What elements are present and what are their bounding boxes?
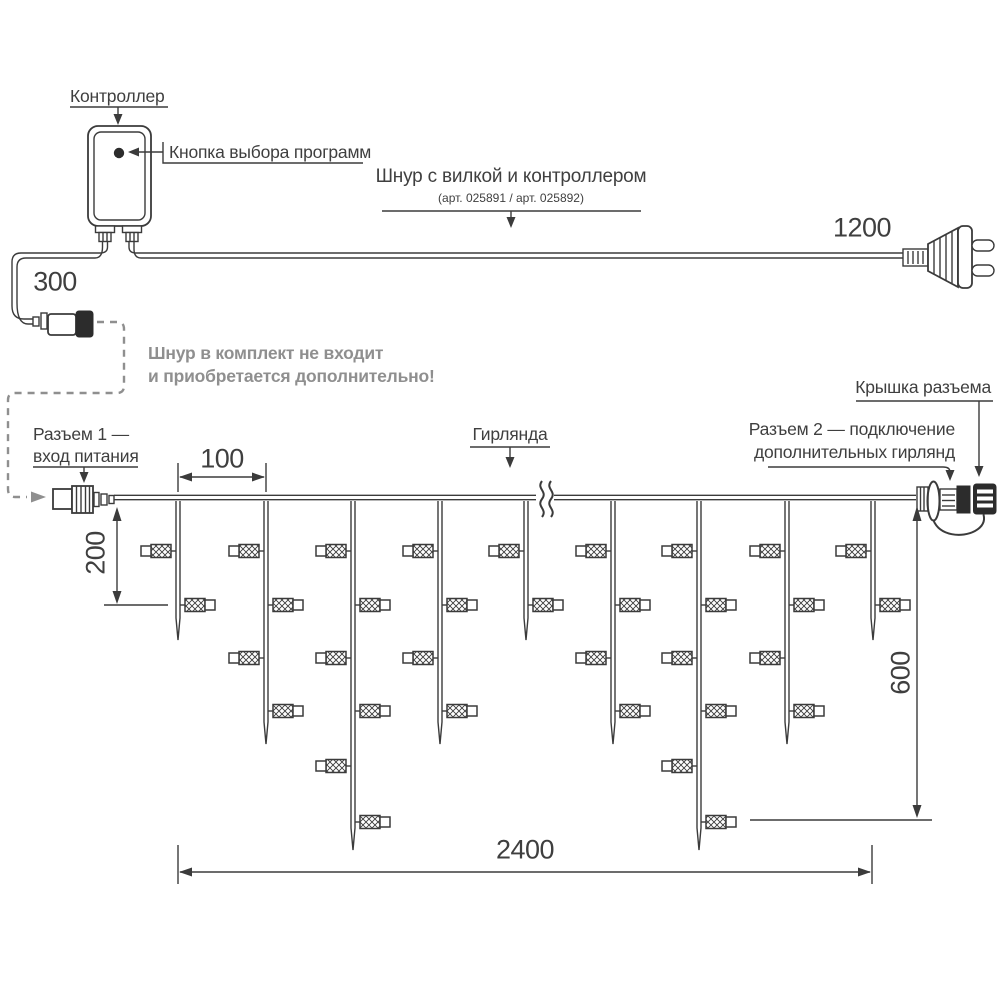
lamp-icon: [403, 545, 438, 558]
wire-break-icon: [536, 480, 554, 517]
controller-box: [88, 126, 151, 242]
leader-controller: [70, 107, 168, 125]
dim-2400-label: 2400: [496, 835, 554, 866]
garland-drops: [141, 501, 910, 850]
lamp-icon: [701, 816, 736, 829]
lamp-icon: [528, 599, 563, 612]
lamp-icon: [316, 652, 351, 665]
controller-outlet-left: [96, 226, 115, 242]
lamp-icon: [141, 545, 176, 558]
power-plug-icon: [903, 226, 994, 288]
lamp-icon: [662, 760, 697, 773]
lamp-icon: [355, 599, 390, 612]
garland-drop: [836, 501, 910, 640]
lamp-icon: [750, 545, 785, 558]
program-button-icon: [114, 148, 124, 158]
not-included-line1: Шнур в комплект не входит: [148, 343, 383, 364]
controller-label: Контроллер: [70, 86, 165, 107]
cap-tether-cable: [934, 515, 985, 535]
lamp-icon: [355, 705, 390, 718]
lamp-icon: [576, 545, 611, 558]
lamp-icon: [489, 545, 524, 558]
cord-connector-icon: [33, 311, 93, 337]
dim-100-label: 100: [200, 444, 244, 475]
cord-articles-label: (арт. 025891 / арт. 025892): [438, 191, 584, 205]
lamp-icon: [268, 599, 303, 612]
lamp-icon: [403, 652, 438, 665]
garland-drop: [316, 501, 390, 850]
garland-connector-1-icon: [53, 486, 114, 513]
garland-drop: [141, 501, 215, 640]
lamp-icon: [229, 545, 264, 558]
cord-title-label: Шнур с вилкой и контроллером: [376, 166, 647, 188]
lamp-icon: [442, 599, 477, 612]
lamp-icon: [662, 545, 697, 558]
leader-connector-2: [768, 467, 955, 481]
lamp-icon: [316, 545, 351, 558]
garland-drop: [229, 501, 303, 744]
dim-300-label: 300: [33, 267, 77, 298]
connector-2-label-line1: Разъем 2 — подключение: [749, 419, 955, 440]
connector-1-label-line2: вход питания: [33, 446, 139, 467]
lamp-icon: [442, 705, 477, 718]
lamp-icon: [836, 545, 871, 558]
lamp-icon: [615, 705, 650, 718]
connector-1-label-line1: Разъем 1 —: [33, 424, 129, 445]
lamp-icon: [180, 599, 215, 612]
lamp-icon: [268, 705, 303, 718]
lamp-icon: [576, 652, 611, 665]
lamp-icon: [229, 652, 264, 665]
not-included-dashed-path: [8, 322, 124, 503]
not-included-line2: и приобретается дополнительно!: [148, 366, 435, 387]
leader-connector-1: [33, 467, 138, 483]
lamp-icon: [662, 652, 697, 665]
dim-200-label: 200: [81, 531, 112, 575]
lamp-icon: [615, 599, 650, 612]
lamp-icon: [875, 599, 910, 612]
garland-drop: [662, 501, 736, 850]
lamp-icon: [701, 705, 736, 718]
garland-drop: [403, 501, 477, 744]
lamp-icon: [750, 652, 785, 665]
program-button-label: Кнопка выбора программ: [169, 142, 371, 163]
garland-wire: [114, 495, 916, 499]
lamp-icon: [355, 816, 390, 829]
dashed-arrowhead: [31, 492, 46, 503]
garland-drop: [576, 501, 650, 744]
leader-cord: [382, 211, 641, 228]
connector-cap-label: Крышка разъема: [855, 377, 991, 398]
controller-outlet-right: [123, 226, 142, 242]
lamp-icon: [701, 599, 736, 612]
diagram-stage: Контроллер Кнопка выбора программ Шнур с…: [0, 0, 1000, 1000]
controller-cord-right: [129, 241, 903, 258]
leader-garland: [470, 447, 550, 468]
connector-cap-icon: [974, 484, 997, 514]
lamp-icon: [789, 599, 824, 612]
lamp-icon: [316, 760, 351, 773]
dim-1200-label: 1200: [833, 213, 891, 244]
garland-drop: [750, 501, 824, 744]
garland-label: Гирлянда: [472, 424, 547, 445]
lamp-icon: [789, 705, 824, 718]
connector-2-label-line2: дополнительных гирлянд: [754, 442, 955, 463]
garland-drop: [489, 501, 563, 640]
dim-600-label: 600: [886, 651, 917, 695]
